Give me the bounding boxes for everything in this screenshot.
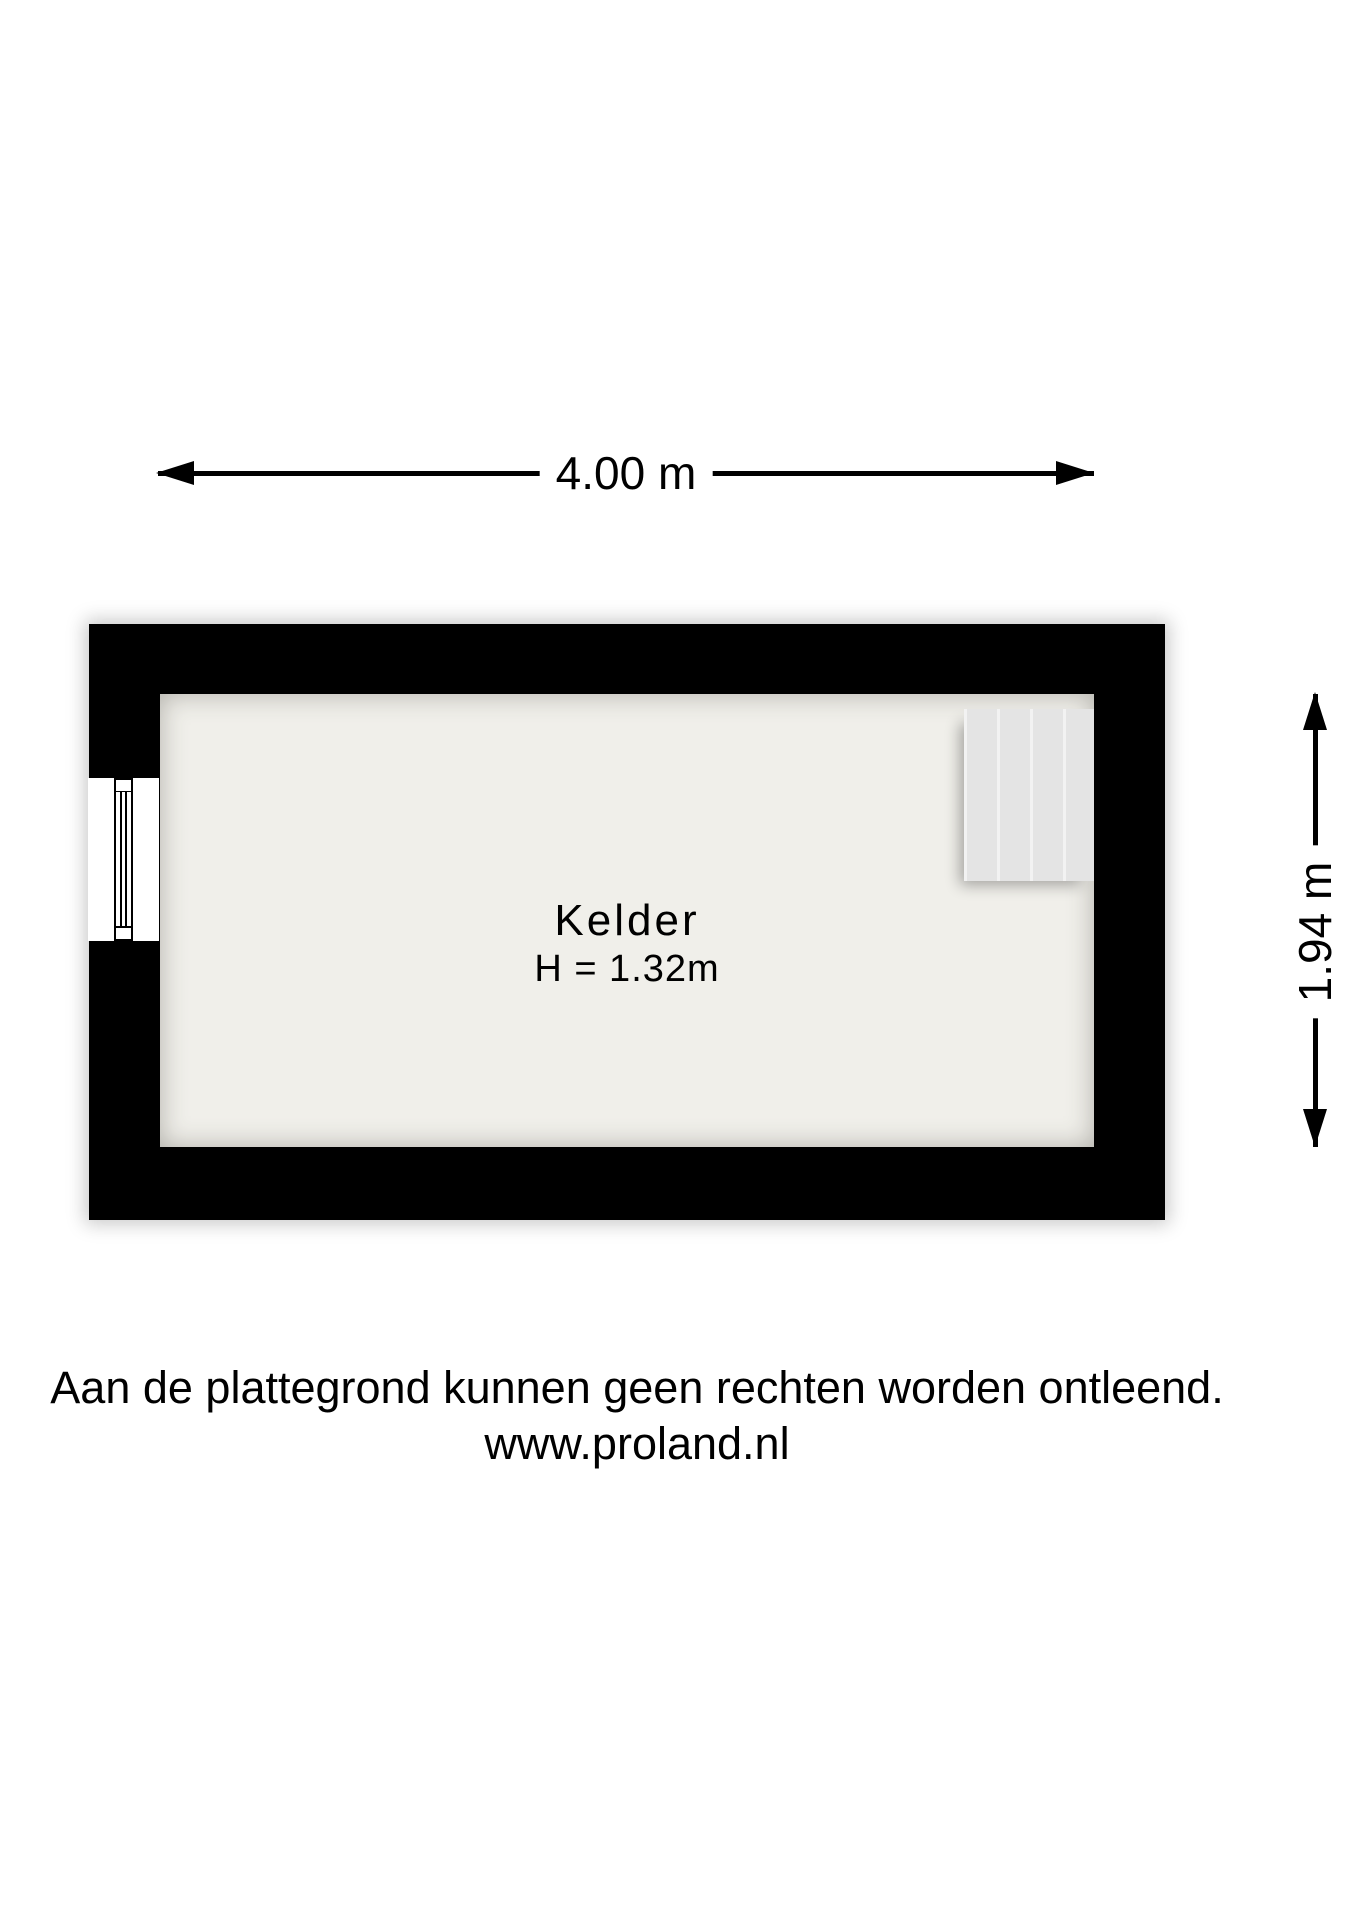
dimension-top-label: 4.00 m	[540, 447, 713, 499]
floorplan-page: 4.00 m Kelder H = 1.32m 1.94 m Aan de pl…	[0, 0, 1358, 1920]
disclaimer-line2: www.proland.nl	[50, 1416, 1223, 1472]
window-frame-top	[114, 778, 133, 793]
room-height-label: H = 1.32m	[534, 946, 719, 992]
window-frame-bottom	[114, 926, 133, 941]
arrowhead-up-icon	[1303, 692, 1327, 730]
disclaimer-line1: Aan de plattegrond kunnen geen rechten w…	[50, 1360, 1223, 1416]
window-glass	[114, 792, 133, 927]
disclaimer: Aan de plattegrond kunnen geen rechten w…	[50, 1360, 1223, 1472]
arrowhead-left-icon	[156, 461, 194, 485]
stairs-hatch-area	[964, 709, 1094, 881]
arrowhead-right-icon	[1056, 461, 1094, 485]
arrowhead-down-icon	[1303, 1109, 1327, 1147]
dimension-right-label: 1.94 m	[1289, 846, 1341, 1019]
room-label: Kelder H = 1.32m	[534, 896, 719, 992]
window-symbol	[88, 778, 159, 941]
room-name: Kelder	[534, 896, 719, 946]
